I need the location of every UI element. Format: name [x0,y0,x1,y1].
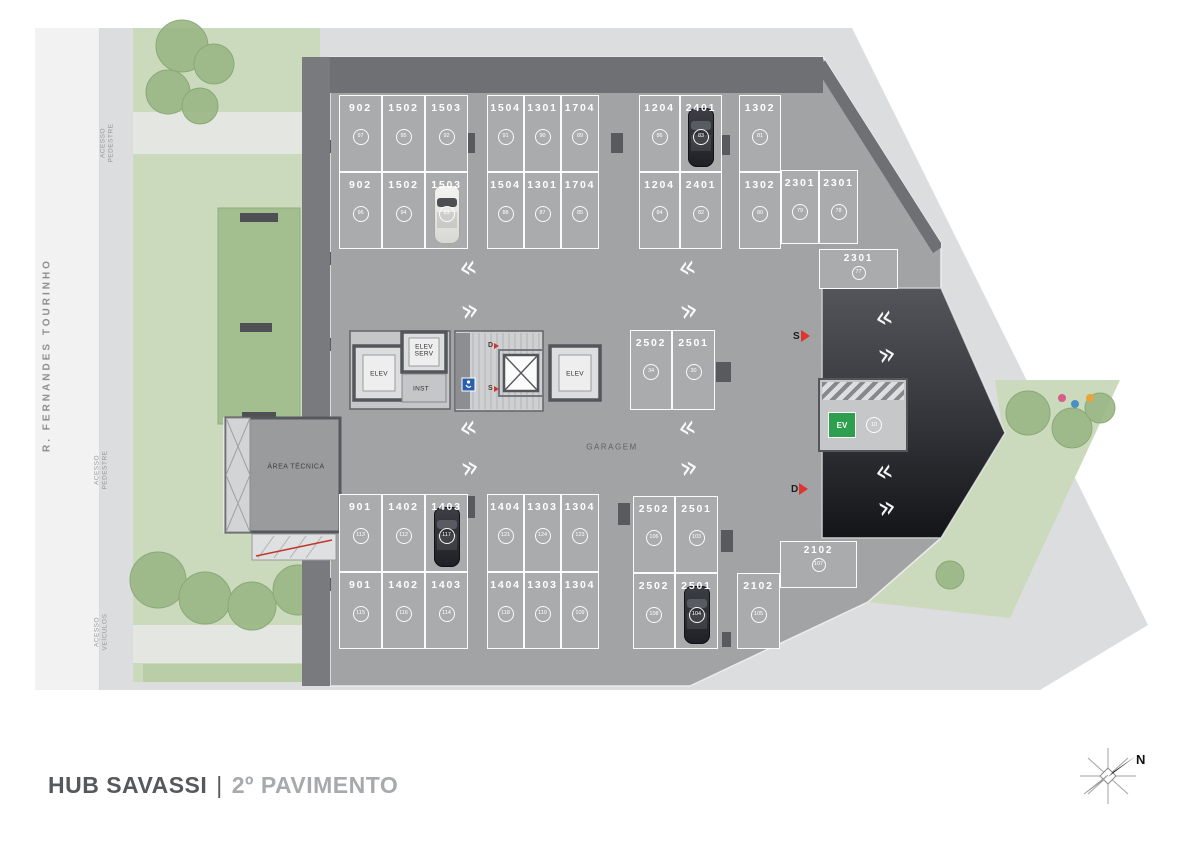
spot-badge: 81 [752,129,768,145]
parking-spot-1704: 170489 [561,95,599,172]
parking-spot-2401: 240183 [680,95,722,172]
street-name: R. FERNANDES TOURINHO [42,258,53,452]
spot-badge: 97 [353,129,369,145]
spot-number: 1504 [490,103,521,114]
access-label: ACESSO PEDESTRE [94,450,111,489]
ev-charging-spot: EV 10 [818,378,908,452]
spot-number: 1504 [490,180,521,191]
spot-badge: 80 [752,206,768,222]
spot-number: 2102 [743,581,774,592]
ramp-marker-letter: D [791,484,798,495]
parking-spot-2502: 2502108 [633,573,675,649]
floor-name: 2º PAVIMENTO [232,772,398,799]
spot-badge: 92 [439,129,455,145]
parking-spot-1404: 1404118 [487,572,524,649]
spot-badge: 34 [643,364,659,380]
spot-badge: 105 [751,607,767,623]
spot-badge: 94 [396,206,412,222]
parking-spot-1502: 150294 [382,172,425,249]
spot-number: 901 [349,502,372,513]
parking-spot-1204: 120484 [639,172,680,249]
spot-badge: 112 [396,528,412,544]
spot-number: 1302 [745,180,776,191]
spot-number: 902 [349,103,372,114]
parking-spot-2502: 2502106 [633,496,675,573]
spot-number: 1304 [565,502,596,513]
spot-badge: 117 [439,528,455,544]
parking-spot-2501: 2501103 [675,496,718,573]
spot-badge: 106 [646,530,662,546]
spot-number: 1502 [388,180,419,191]
spot-number: 2501 [678,338,709,349]
spot-badge: 10 [866,417,882,433]
spot-number: 901 [349,580,372,591]
compass-north-label: N [1136,752,1145,767]
parking-spot-1302: 130280 [739,172,781,249]
spot-number: 2301 [823,178,854,189]
parking-spot-2501: 250130 [672,330,715,410]
arrow-right-icon [494,386,499,392]
project-name: HUB SAVASSI [48,772,207,799]
spot-badge: 107 [812,558,826,572]
parking-spot-1504: 150488 [487,172,524,249]
spot-number: 1403 [431,502,462,513]
stair-up-marker: S [488,385,499,392]
spot-number: 1404 [490,580,521,591]
parking-spot-1301: 130187 [524,172,561,249]
parking-spot-2102: 2102105 [737,573,780,649]
spot-number: 1403 [431,580,462,591]
spot-number: 902 [349,180,372,191]
parking-spot-902: 90297 [339,95,382,172]
spot-number: 1301 [527,180,558,191]
spot-badge: 85 [572,206,588,222]
spot-badge: 115 [353,606,369,622]
spot-badge: 93 [439,206,455,222]
spot-badge: 83 [693,129,709,145]
spot-badge: 87 [535,206,551,222]
spot-number: 2401 [686,103,717,114]
parking-spot-902: 90296 [339,172,382,249]
parking-spot-1404: 1404121 [487,494,524,572]
spot-badge: 118 [498,606,514,622]
spot-badge: 95 [396,129,412,145]
spot-number: 1402 [388,502,419,513]
arrow-right-icon [799,483,808,495]
parking-spot-1402: 1402116 [382,572,425,649]
spot-badge: 78 [831,204,847,220]
parking-spot-1204: 120486 [639,95,680,172]
spot-number: 1204 [644,103,675,114]
parking-spot-1304: 1304123 [561,494,599,572]
arrow-right-icon [801,330,810,342]
parking-spot-1704: 170485 [561,172,599,249]
parking-spots-layer: 9029715029515039215049113019017048912048… [0,0,1200,847]
parking-spot-2401: 240182 [680,172,722,249]
spot-badge: 90 [535,129,551,145]
spot-badge: 123 [572,528,588,544]
spot-badge: 82 [693,206,709,222]
arrow-right-icon [494,343,499,349]
stair-down-marker: D [488,342,499,349]
elevator-left-label: ELEV [370,370,388,377]
service-elevator-label: ELEV SERV [415,344,434,359]
parking-spot-1301: 130190 [524,95,561,172]
spot-badge: 96 [353,206,369,222]
spot-number: 1303 [527,580,558,591]
spot-badge: 30 [686,364,702,380]
parking-spot-1402: 1402112 [382,494,425,572]
spot-badge: 116 [396,606,412,622]
spot-badge: 84 [652,206,668,222]
technical-area-label: ÁREA TÉCNICA [267,464,324,471]
parking-spot-2502: 250234 [630,330,672,410]
spot-number: 2502 [636,338,667,349]
title-divider: | [216,772,222,799]
elevator-right-label: ELEV [566,370,584,377]
parking-spot-2301: 230177 [819,249,898,289]
spot-number: 2301 [844,254,873,264]
parking-spot-1503: 150393 [425,172,468,249]
spot-badge: 109 [572,606,588,622]
spot-badge: 124 [535,528,551,544]
ramp-marker-d: D [791,483,808,495]
spot-badge: 114 [439,606,455,622]
ramp-marker-s: S [793,330,810,342]
parking-spot-1303: 1303110 [524,572,561,649]
spot-badge: 77 [852,266,866,280]
spot-number: 1503 [431,180,462,191]
spot-number: 1302 [745,103,776,114]
parking-spot-1304: 1304109 [561,572,599,649]
floorplan-page: 9029715029515039215049113019017048912048… [0,0,1200,847]
parking-spot-1403: 1403117 [425,494,468,572]
spot-badge: 104 [689,607,705,623]
parking-spot-2301: 230179 [781,170,819,244]
hatch-pattern [822,382,904,400]
spot-number: 1704 [565,103,596,114]
spot-badge: 91 [498,129,514,145]
parking-spot-1502: 150295 [382,95,425,172]
plan-title: HUB SAVASSI | 2º PAVIMENTO [48,772,398,799]
spot-badge: 108 [646,607,662,623]
spot-number: 1704 [565,180,596,191]
parking-spot-2301: 230178 [819,170,858,244]
parking-spot-901: 901115 [339,572,382,649]
inst-label: INST [413,385,429,392]
spot-number: 1402 [388,580,419,591]
parking-spot-1303: 1303124 [524,494,561,572]
spot-badge: 110 [535,606,551,622]
spot-number: 1204 [644,180,675,191]
spot-badge: 103 [689,530,705,546]
garage-label: GARAGEM [586,443,637,452]
spot-number: 1404 [490,502,521,513]
spot-badge: 79 [792,204,808,220]
spot-number: 2301 [785,178,816,189]
spot-badge: 113 [353,528,369,544]
parking-spot-1504: 150491 [487,95,524,172]
parking-spot-1503: 150392 [425,95,468,172]
spot-number: 2501 [681,581,712,592]
spot-number: 2102 [804,546,833,556]
spot-number: 1503 [431,103,462,114]
spot-badge: 121 [498,528,514,544]
ev-charging-icon: EV [828,412,856,438]
parking-spot-2501: 2501104 [675,573,718,649]
parking-spot-1403: 1403114 [425,572,468,649]
spot-badge: 86 [652,129,668,145]
spot-number: 1304 [565,580,596,591]
spot-number: 1502 [388,103,419,114]
spot-number: 1303 [527,502,558,513]
spot-number: 2502 [639,504,670,515]
access-label: ACESSO VEÍCULOS [94,614,111,651]
spot-badge: 88 [498,206,514,222]
spot-number: 2502 [639,581,670,592]
parking-spot-1302: 130281 [739,95,781,172]
parking-spot-901: 901113 [339,494,382,572]
spot-number: 1301 [527,103,558,114]
access-label: ACESSO PEDESTRE [100,123,117,162]
spot-badge: 89 [572,129,588,145]
spot-number: 2401 [686,180,717,191]
spot-number: 2501 [681,504,712,515]
ramp-marker-letter: S [793,331,800,342]
parking-spot-2102: 2102107 [780,541,857,588]
